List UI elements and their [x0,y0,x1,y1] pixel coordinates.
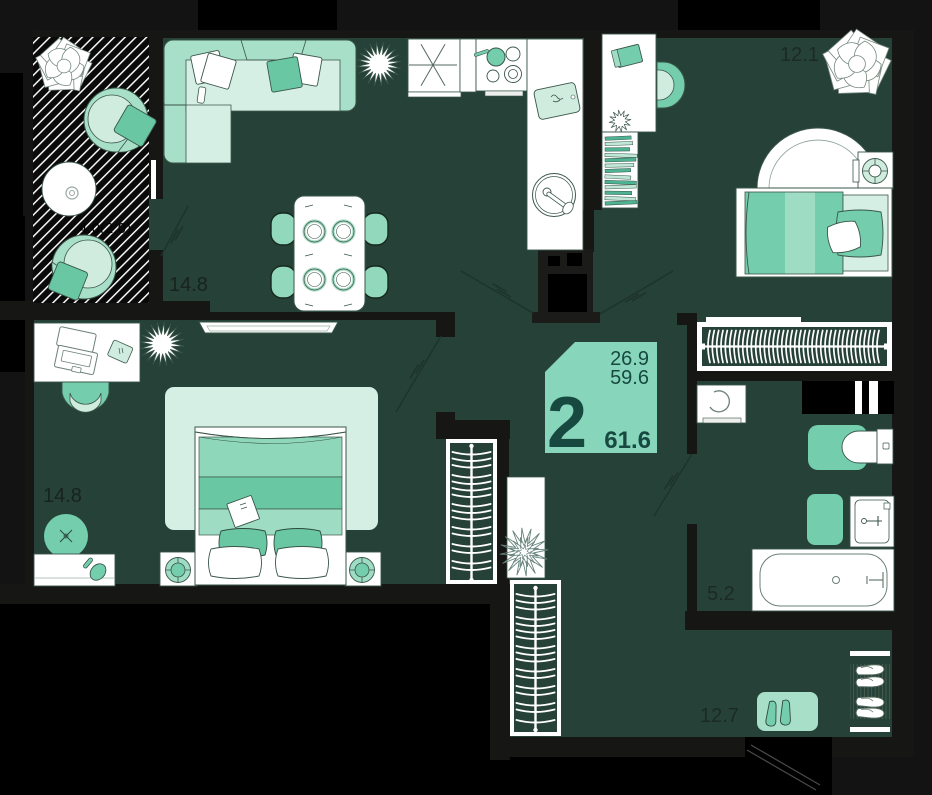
svg-text:12.1: 12.1 [780,44,819,66]
svg-text:14.8: 14.8 [43,485,82,507]
svg-text:5.2: 5.2 [707,583,735,605]
svg-text:2: 2 [547,383,587,463]
svg-text:61.6: 61.6 [604,427,651,454]
svg-text:59.6: 59.6 [610,367,649,389]
svg-text:12.7: 12.7 [700,705,739,727]
svg-text:4.0(2.0): 4.0(2.0) [79,221,131,237]
svg-text:14.8: 14.8 [169,274,208,296]
